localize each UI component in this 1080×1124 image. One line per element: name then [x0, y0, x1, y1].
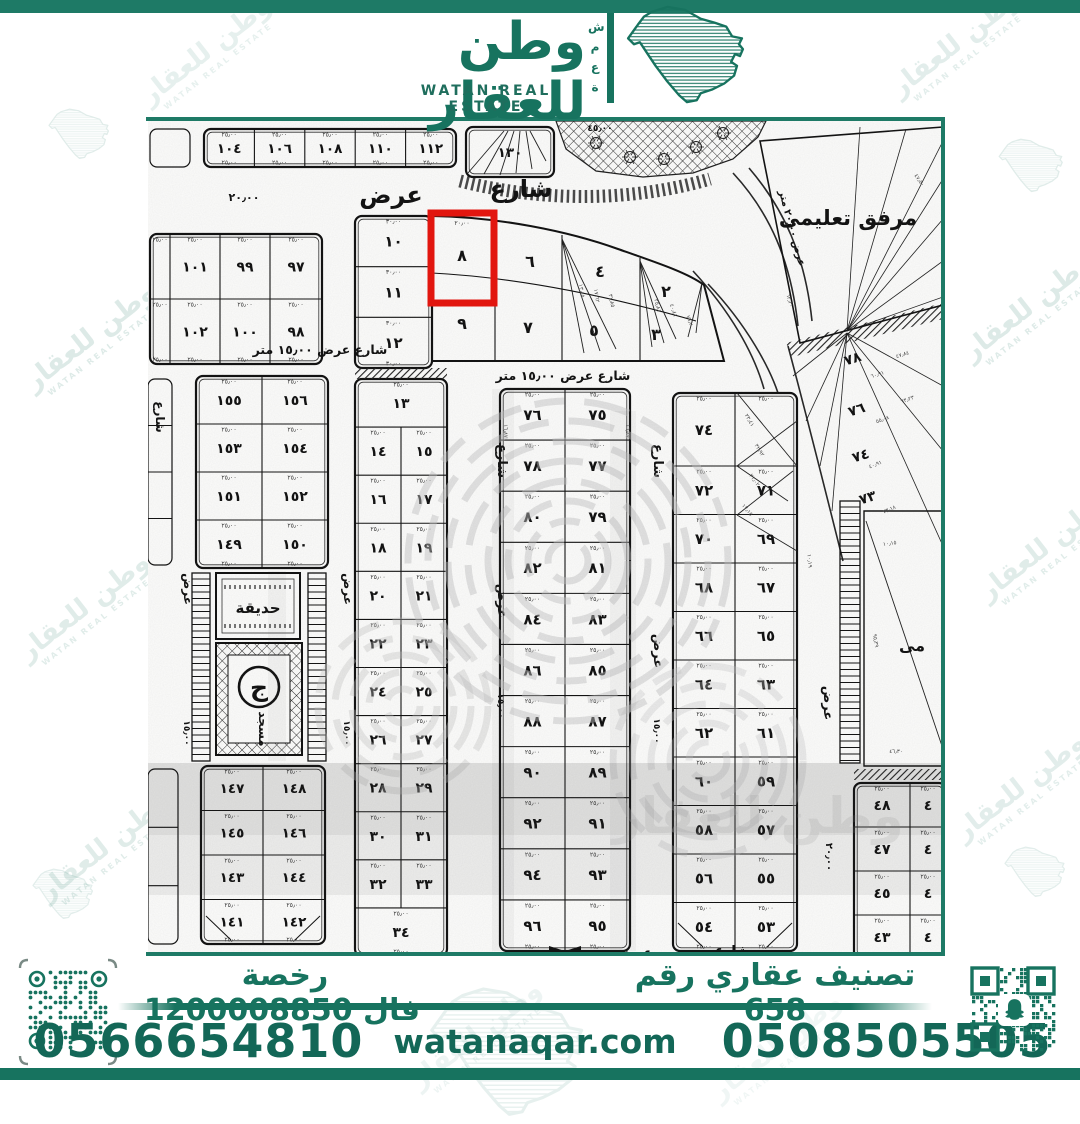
- ksa-watermark: [996, 138, 1066, 195]
- plot-map: ١٠٤٢٥٫٠٠٢٥٫٠٠١٠٦٢٥٫٠٠٢٥٫٠٠١٠٨٢٥٫٠٠٢٥٫٠٠١…: [148, 121, 943, 954]
- brand-mark-letters: شمعة: [588, 17, 602, 97]
- ksa-watermark: [46, 108, 112, 162]
- snapchat-qr-code[interactable]: [964, 954, 1064, 1066]
- brand-divider-bar: [607, 13, 614, 103]
- ksa-watermark: [30, 868, 96, 922]
- ksa-watermark: [1002, 846, 1068, 900]
- website-link[interactable]: watanaqar.com: [393, 1022, 676, 1061]
- brand-watermark: وطن للعقارWATAN REAL ESTATE: [956, 246, 1080, 374]
- phone-number-left[interactable]: 0566654810: [33, 1014, 363, 1068]
- footer-divider: [118, 1003, 932, 1010]
- contact-row: 0566654810 watanaqar.com 0508505505: [140, 1012, 930, 1070]
- brand-name-english: WATAN REAL ESTATE: [386, 83, 586, 115]
- brand-watermark: وطن للعقارWATAN REAL ESTATE: [972, 486, 1080, 614]
- brand-watermark: وطن للعقارWATAN REAL ESTATE: [18, 276, 167, 404]
- saudi-map-icon: [622, 5, 750, 109]
- brand-watermark: وطن للعقارWATAN REAL ESTATE: [12, 546, 161, 674]
- brand-watermark: وطن للعقارWATAN REAL ESTATE: [134, 0, 283, 118]
- scan-noise: [148, 121, 943, 954]
- brand-watermark: وطن للعقارWATAN REAL ESTATE: [884, 0, 1033, 110]
- brand-watermark: وطن للعقارWATAN REAL ESTATE: [948, 726, 1080, 854]
